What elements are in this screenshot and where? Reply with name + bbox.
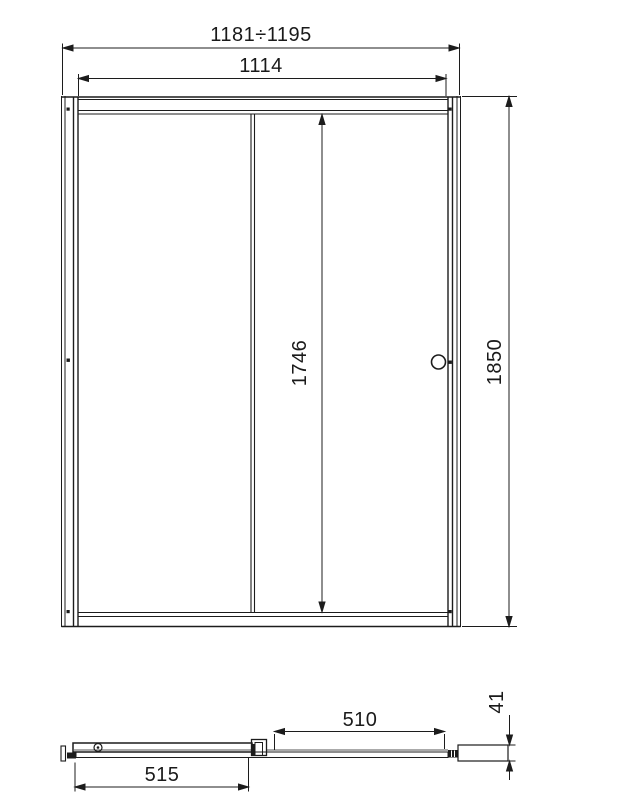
dim-overall-height-label: 1850 [485, 339, 505, 386]
shower-door-drawing [0, 0, 626, 810]
technical-drawing-page: 1181÷1195 1114 1746 1850 510 515 41 [0, 0, 626, 810]
door-frame [62, 97, 461, 627]
wall-profile-left [62, 96, 66, 627]
dim-door-panel-label: 515 [145, 765, 180, 785]
roller-bracket-section [252, 740, 267, 756]
fixing-dots [67, 108, 452, 614]
plan-view-drawing [61, 740, 508, 762]
wall-profile-right-section [458, 745, 508, 761]
dim-glass-height-label: 1746 [290, 340, 310, 387]
wall-profile-right [457, 96, 461, 627]
dim-inner-width-lines [79, 74, 447, 96]
dim-profile-depth-label: 41 [487, 690, 507, 713]
dim-fixed-panel-label: 510 [343, 710, 378, 730]
sliding-door-panel-section [73, 743, 252, 752]
dim-fixed-panel-lines [275, 729, 445, 751]
dim-inner-width-label: 1114 [239, 56, 283, 76]
sliding-panel-edge [251, 114, 255, 613]
dimension-lines [63, 44, 518, 792]
door-handle-circle [432, 355, 446, 369]
front-view-drawing [62, 96, 461, 627]
dim-overall-width-label: 1181÷1195 [210, 25, 312, 45]
wall-bracket-right-section [448, 750, 458, 758]
dim-glass-height-lines [319, 115, 325, 613]
